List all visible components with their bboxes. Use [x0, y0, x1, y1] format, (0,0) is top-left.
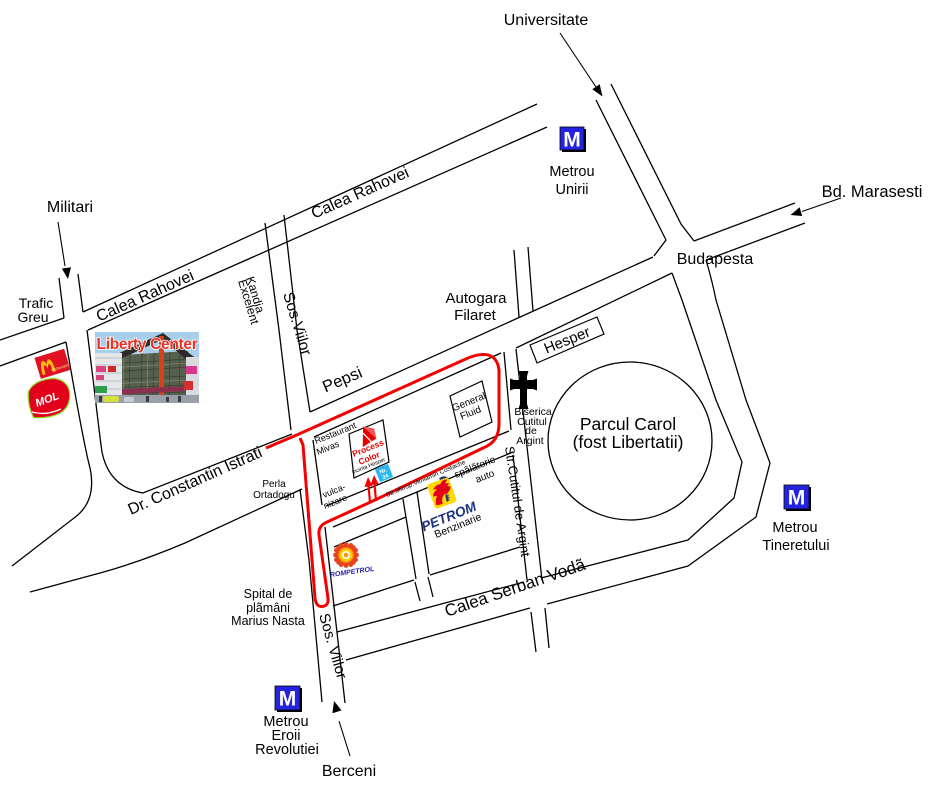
svg-text:Parcul Carol: Parcul Carol: [580, 414, 676, 434]
svg-text:Metrou: Metrou: [549, 164, 594, 180]
svg-text:Berceni: Berceni: [322, 763, 376, 780]
svg-text:M: M: [279, 688, 297, 711]
svg-text:Perla: Perla: [262, 479, 286, 490]
svg-text:(fost Libertatii): (fost Libertatii): [573, 432, 684, 452]
svg-text:Tineretului: Tineretului: [762, 538, 829, 554]
svg-text:Budapesta: Budapesta: [677, 251, 754, 268]
svg-text:Liberty Center: Liberty Center: [97, 336, 198, 353]
svg-text:plãmâni: plãmâni: [246, 601, 290, 615]
svg-text:Spital de: Spital de: [244, 587, 293, 601]
svg-text:Revolutiei: Revolutiei: [255, 742, 319, 758]
svg-text:Argint: Argint: [516, 435, 544, 447]
svg-text:Bd. Marasesti: Bd. Marasesti: [822, 183, 923, 201]
svg-text:Militari: Militari: [47, 199, 93, 216]
svg-text:Greu: Greu: [17, 309, 48, 325]
svg-text:Metrou: Metrou: [772, 520, 817, 536]
svg-text:Ortadogu: Ortadogu: [253, 490, 295, 501]
svg-text:M: M: [563, 129, 581, 152]
svg-text:Universitate: Universitate: [504, 12, 589, 29]
svg-text:Filaret: Filaret: [454, 307, 497, 324]
svg-text:M: M: [788, 487, 806, 510]
svg-text:Autogara: Autogara: [446, 290, 508, 307]
svg-text:Unirii: Unirii: [555, 182, 588, 198]
svg-text:Marius Nasta: Marius Nasta: [231, 614, 305, 628]
